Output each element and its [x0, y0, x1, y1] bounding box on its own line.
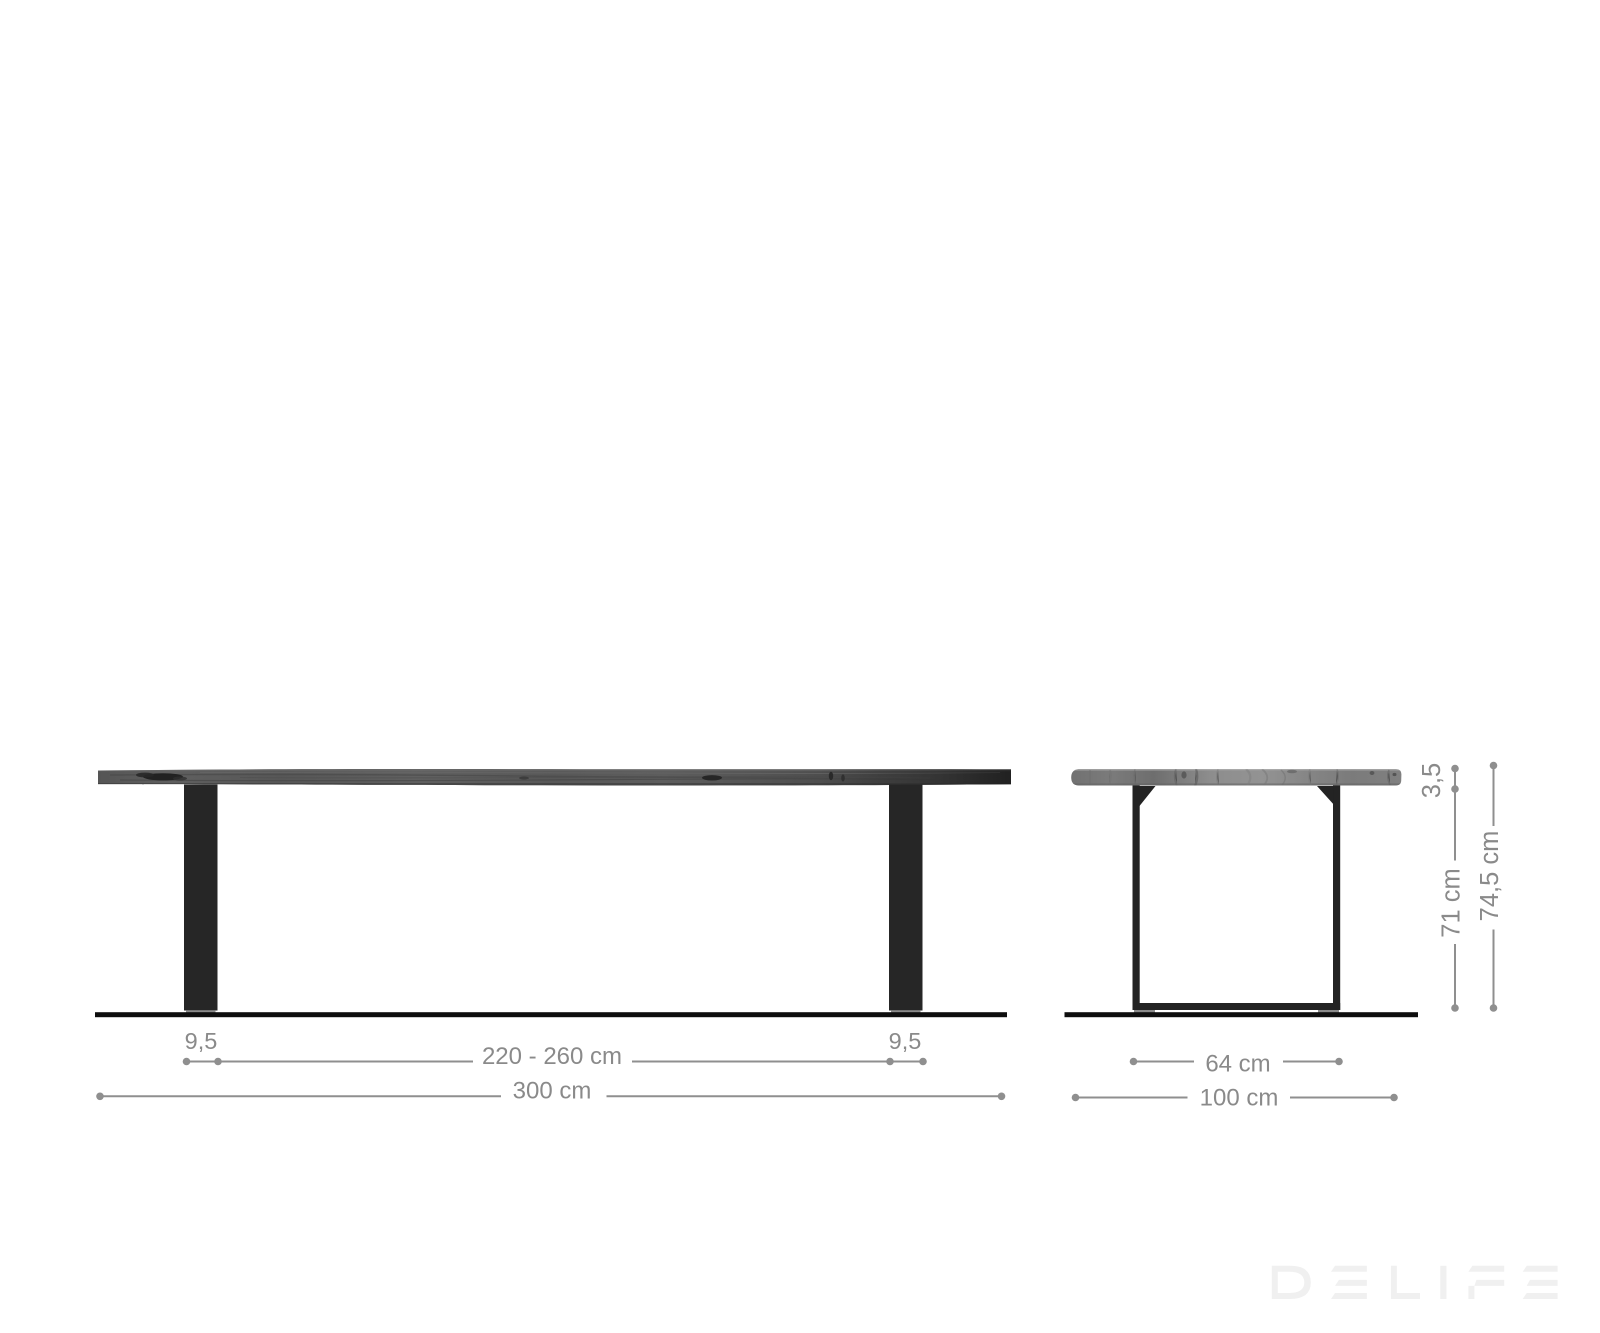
svg-text:100 cm: 100 cm: [1200, 1085, 1279, 1112]
svg-text:74,5 cm: 74,5 cm: [1476, 831, 1504, 922]
svg-text:9,5: 9,5: [889, 1028, 922, 1054]
svg-text:300 cm: 300 cm: [513, 1077, 592, 1104]
svg-text:9,5: 9,5: [185, 1028, 218, 1054]
svg-text:220 - 260 cm: 220 - 260 cm: [482, 1043, 622, 1070]
svg-text:64 cm: 64 cm: [1205, 1051, 1270, 1078]
svg-text:71 cm: 71 cm: [1438, 868, 1466, 937]
svg-text:3,5: 3,5: [1418, 763, 1446, 798]
